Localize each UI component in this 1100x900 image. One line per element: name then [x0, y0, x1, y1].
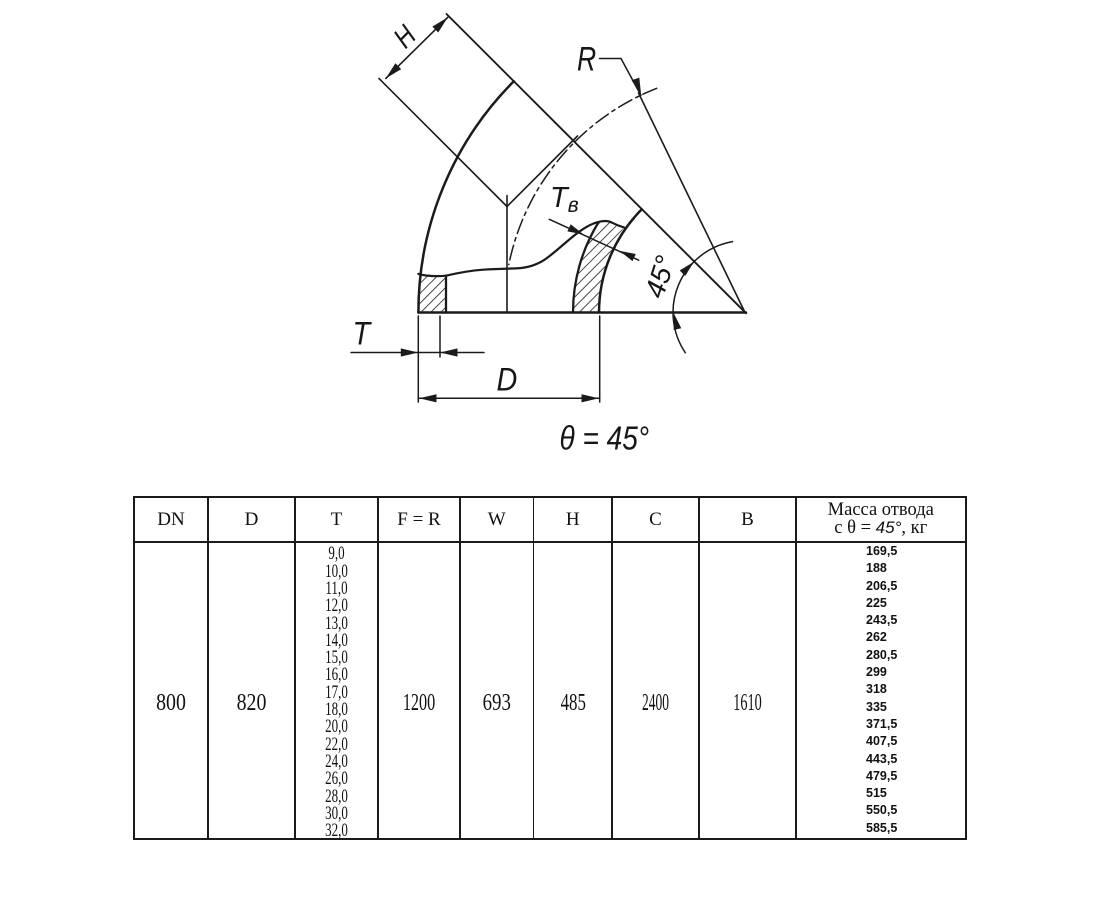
svg-text:D: D [497, 362, 518, 398]
svg-text:θ = 45°: θ = 45° [560, 420, 650, 457]
svg-text:T: T [353, 316, 373, 352]
svg-text:Tв: Tв [550, 182, 579, 217]
svg-text:H: H [387, 18, 423, 54]
svg-text:R: R [577, 40, 596, 78]
